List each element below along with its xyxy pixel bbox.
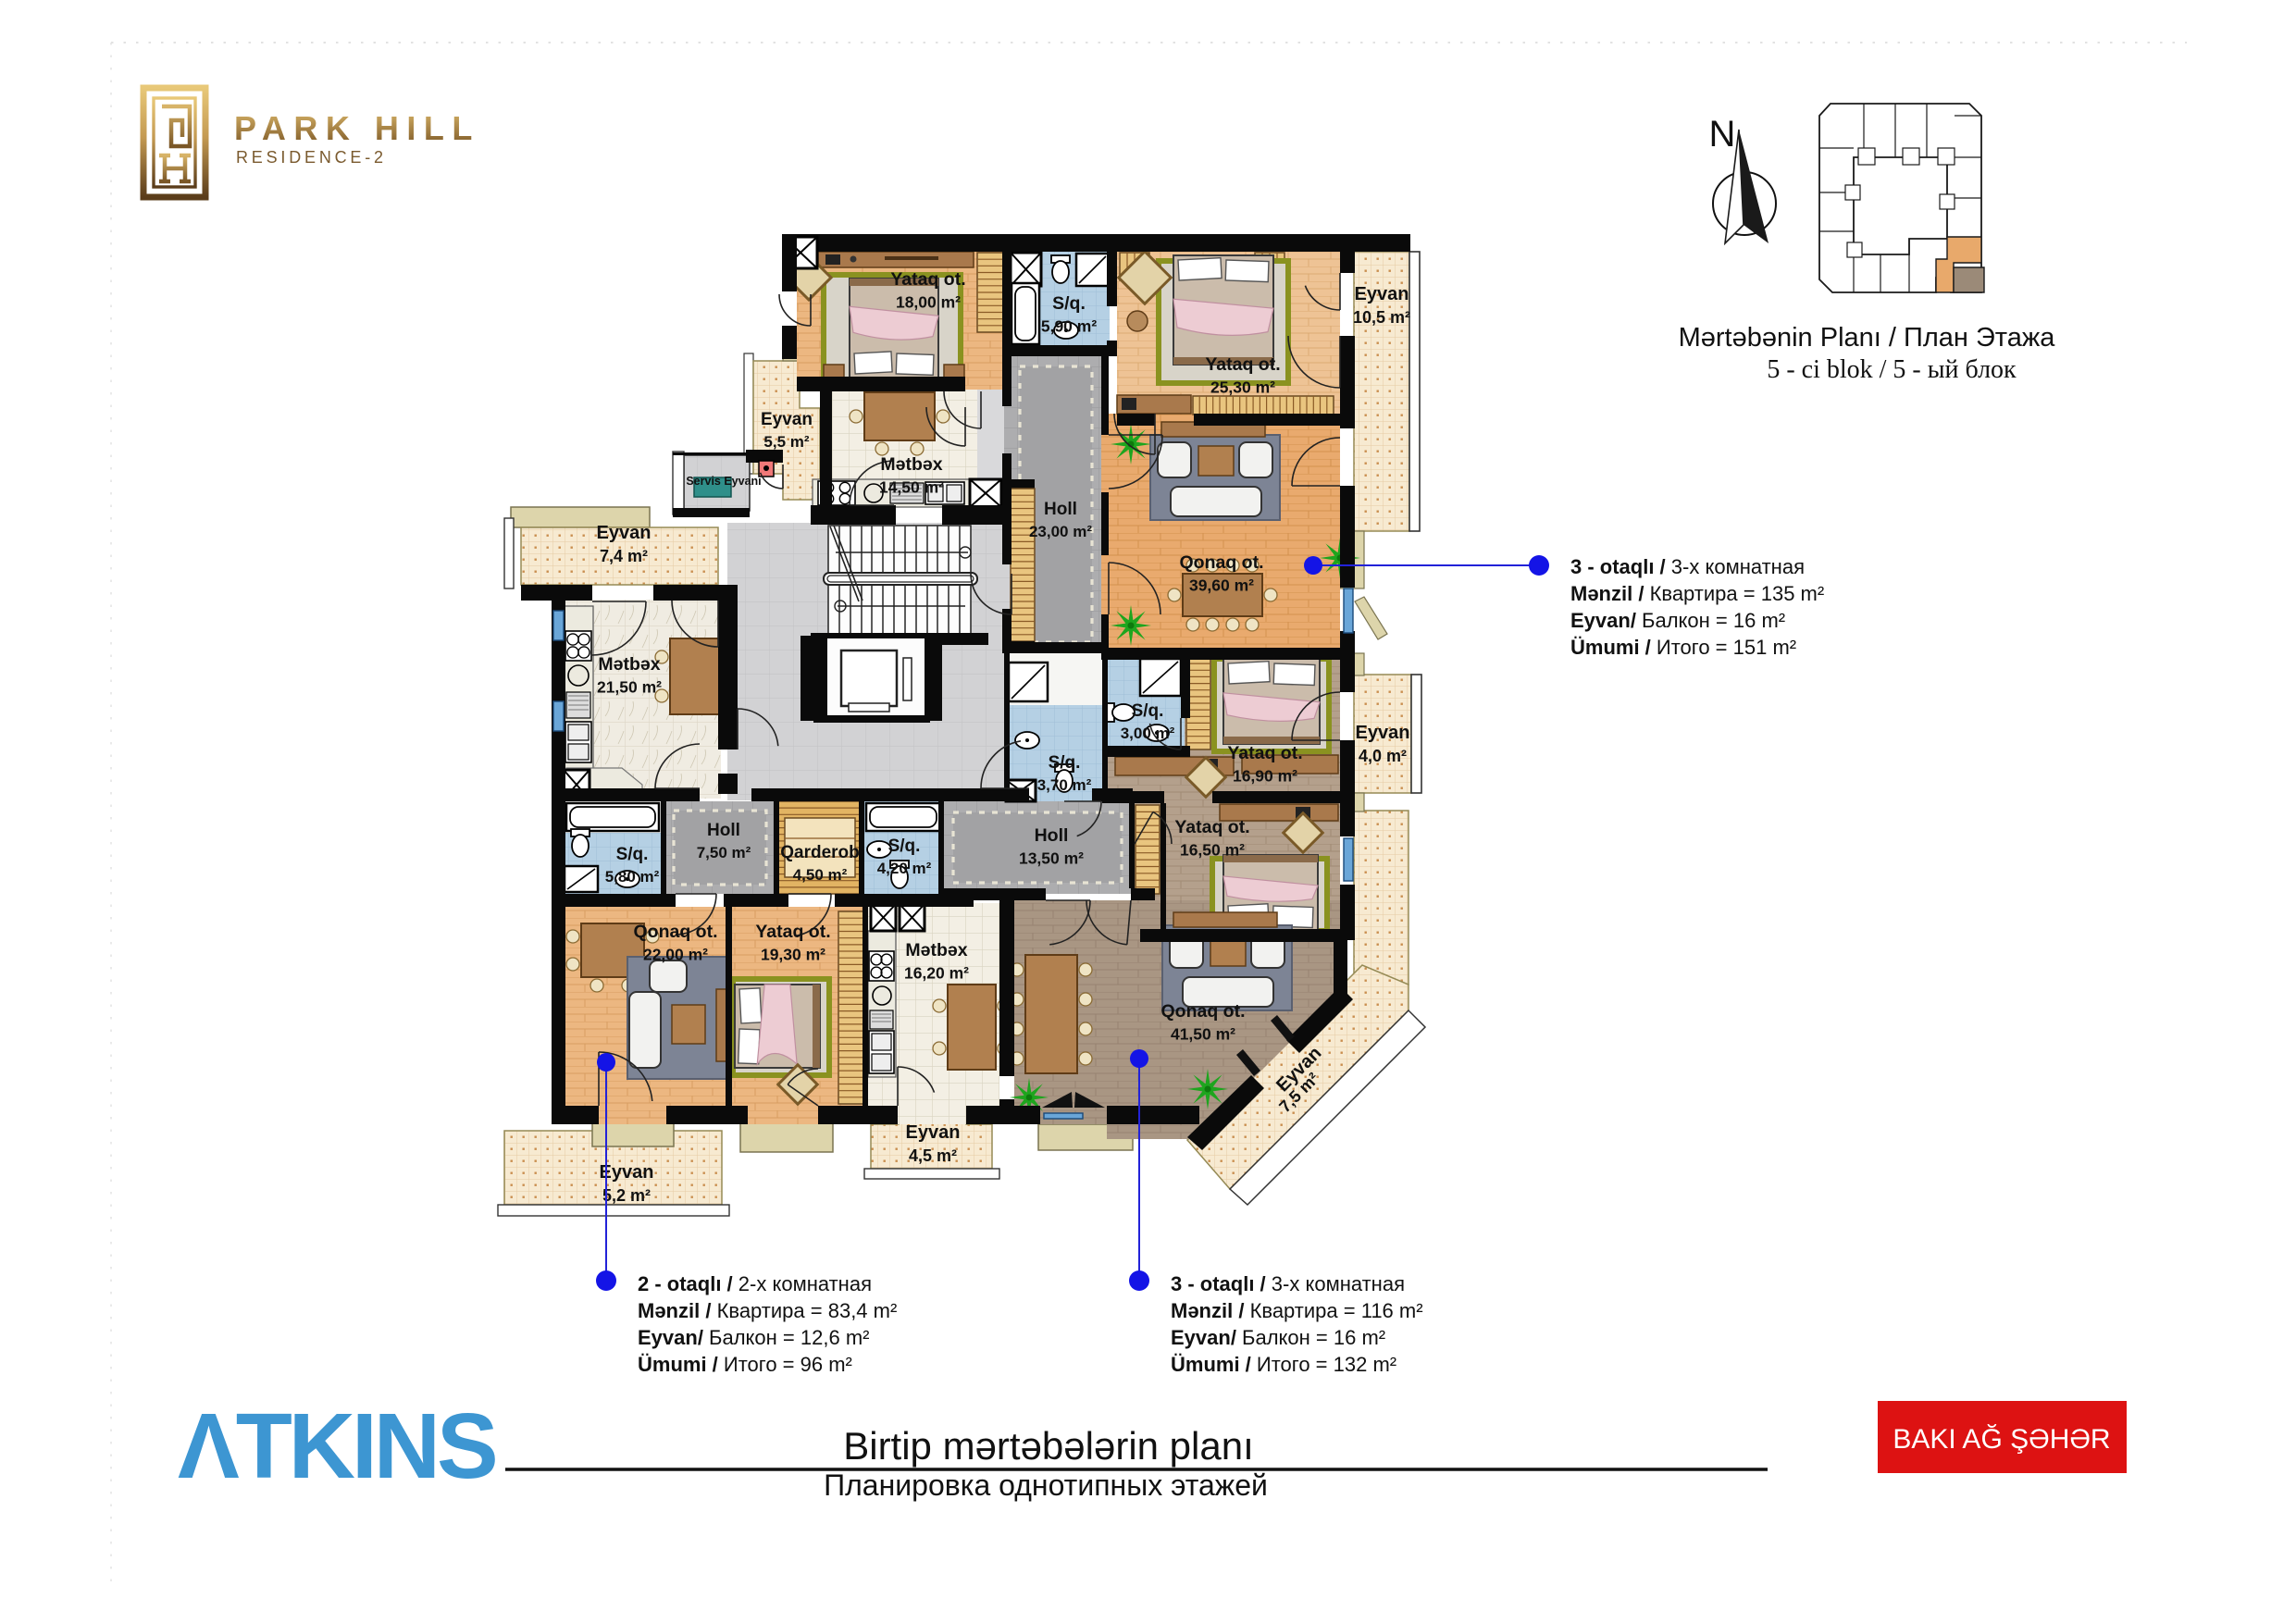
- svg-text:5,80 m²: 5,80 m²: [605, 868, 660, 886]
- svg-text:39,60 m²: 39,60 m²: [1189, 576, 1254, 594]
- svg-text:7,50 m²: 7,50 m²: [697, 844, 751, 861]
- svg-text:5,5 m²: 5,5 m²: [763, 433, 809, 451]
- svg-text:5 - ci blok / 5 - ый блок: 5 - ci blok / 5 - ый блок: [1767, 355, 2017, 384]
- svg-text:21,50 m²: 21,50 m²: [597, 677, 662, 696]
- svg-text:Qonaq ot.: Qonaq ot.: [1161, 1001, 1246, 1022]
- svg-text:Holl: Holl: [1044, 500, 1077, 519]
- svg-text:4,0 m²: 4,0 m²: [1359, 747, 1407, 765]
- svg-text:7,4 m²: 7,4 m²: [600, 547, 648, 565]
- svg-text:Eyvan/ Балкон = 12,6 m²: Eyvan/ Балкон = 12,6 m²: [638, 1326, 869, 1349]
- svg-text:Ümumi / Итого = 96 m²: Ümumi / Итого = 96 m²: [638, 1353, 852, 1376]
- svg-text:Qarderob: Qarderob: [780, 843, 860, 862]
- svg-text:Holl: Holl: [1035, 825, 1069, 846]
- svg-text:S/q.: S/q.: [1132, 701, 1164, 721]
- svg-text:N: N: [1709, 114, 1736, 155]
- svg-text:Планировка однотипных этажей: Планировка однотипных этажей: [824, 1468, 1268, 1502]
- svg-text:RESIDENCE-2: RESIDENCE-2: [236, 148, 387, 167]
- svg-text:Birtip mərtəbələrin planı: Birtip mərtəbələrin planı: [843, 1424, 1254, 1468]
- svg-text:23,00 m²: 23,00 m²: [1029, 523, 1092, 540]
- svg-text:Yataq ot.: Yataq ot.: [755, 922, 830, 942]
- svg-text:22,00 m²: 22,00 m²: [643, 945, 708, 963]
- svg-text:S/q.: S/q.: [1052, 293, 1086, 314]
- svg-text:16,90 m²: 16,90 m²: [1233, 766, 1297, 785]
- svg-text:Yataq ot.: Yataq ot.: [1227, 743, 1302, 763]
- svg-text:13,50 m²: 13,50 m²: [1019, 849, 1084, 867]
- svg-text:41,50 m²: 41,50 m²: [1171, 1024, 1235, 1043]
- svg-text:Mərtəbənin Planı / План Этаж: Mərtəbənin Planı / План Этажа: [1679, 323, 2056, 353]
- svg-text:Yataq ot.: Yataq ot.: [1174, 817, 1249, 837]
- svg-text:Qonaq ot.: Qonaq ot.: [634, 922, 718, 942]
- svg-text:4,50 m²: 4,50 m²: [793, 866, 848, 884]
- svg-text:5,90 m²: 5,90 m²: [1041, 316, 1097, 335]
- svg-text:3,00 m²: 3,00 m²: [1121, 725, 1175, 742]
- svg-text:3,70 m²: 3,70 m²: [1037, 776, 1092, 794]
- svg-text:Eyvan: Eyvan: [906, 1122, 961, 1143]
- svg-text:Mətbəx: Mətbəx: [905, 940, 967, 960]
- svg-text:Ümumi / Итого = 132 m²: Ümumi / Итого = 132 m²: [1171, 1353, 1396, 1376]
- svg-text:25,30 m²: 25,30 m²: [1210, 378, 1275, 396]
- svg-text:3 - otaqlı / 3-х комнатная: 3 - otaqlı / 3-х комнатная: [1570, 555, 1805, 578]
- svg-text:S/q.: S/q.: [888, 836, 921, 856]
- svg-text:10,5 m²: 10,5 m²: [1353, 308, 1410, 327]
- svg-text:Ümumi / Итого = 151 m²: Ümumi / Итого = 151 m²: [1570, 636, 1796, 659]
- svg-text:Eyvan: Eyvan: [761, 410, 813, 429]
- svg-text:Eyvan: Eyvan: [1356, 723, 1410, 743]
- svg-text:S/q.: S/q.: [616, 845, 649, 864]
- svg-text:Yataq ot.: Yataq ot.: [890, 269, 965, 290]
- svg-text:Eyvan/ Балкон = 16 m²: Eyvan/ Балкон = 16 m²: [1570, 609, 1785, 632]
- svg-text:5,2 m²: 5,2 m²: [602, 1186, 651, 1205]
- svg-text:PARK HILL: PARK HILL: [234, 109, 480, 147]
- svg-text:3 - otaqlı / 3-х комнатная: 3 - otaqlı / 3-х комнатная: [1171, 1272, 1405, 1295]
- svg-text:Mətbəx: Mətbəx: [598, 654, 660, 675]
- svg-text:BAKI AĞ ŞƏHƏR: BAKI AĞ ŞƏHƏR: [1893, 1424, 2110, 1455]
- svg-text:Mətbəx: Mətbəx: [880, 454, 942, 475]
- svg-text:2 - otaqlı / 2-х комнатная: 2 - otaqlı / 2-х комнатная: [638, 1272, 872, 1295]
- svg-text:Eyvan: Eyvan: [597, 523, 652, 543]
- svg-text:16,50 m²: 16,50 m²: [1180, 840, 1245, 859]
- svg-text:ΛTKINS: ΛTKINS: [178, 1394, 495, 1498]
- svg-text:Eyvan: Eyvan: [600, 1162, 654, 1183]
- svg-text:Servis Eyvanı: Servis Eyvanı: [686, 475, 761, 488]
- svg-text:Mənzil / Квартира = 135 m²: Mənzil / Квартира = 135 m²: [1570, 582, 1824, 605]
- svg-text:Mənzil / Квартира = 83,4 m²: Mənzil / Квартира = 83,4 m²: [638, 1299, 897, 1322]
- svg-text:14,50 m²: 14,50 m²: [879, 477, 944, 496]
- svg-text:4,20 m²: 4,20 m²: [877, 860, 932, 877]
- svg-text:Yataq ot.: Yataq ot.: [1205, 354, 1280, 375]
- svg-text:Eyvan/ Балкон = 16 m²: Eyvan/ Балкон = 16 m²: [1171, 1326, 1385, 1349]
- svg-text:19,30 m²: 19,30 m²: [761, 945, 825, 963]
- svg-text:Eyvan: Eyvan: [1355, 284, 1409, 304]
- svg-text:18,00 m²: 18,00 m²: [896, 292, 961, 311]
- svg-text:4,5 m²: 4,5 m²: [909, 1146, 957, 1165]
- svg-text:S/q.: S/q.: [1049, 753, 1081, 773]
- svg-text:Qonaq ot.: Qonaq ot.: [1180, 552, 1264, 573]
- svg-text:Holl: Holl: [707, 821, 740, 840]
- svg-text:Mənzil / Квартира = 116 m²: Mənzil / Квартира = 116 m²: [1171, 1299, 1423, 1322]
- svg-text:16,20 m²: 16,20 m²: [904, 963, 969, 982]
